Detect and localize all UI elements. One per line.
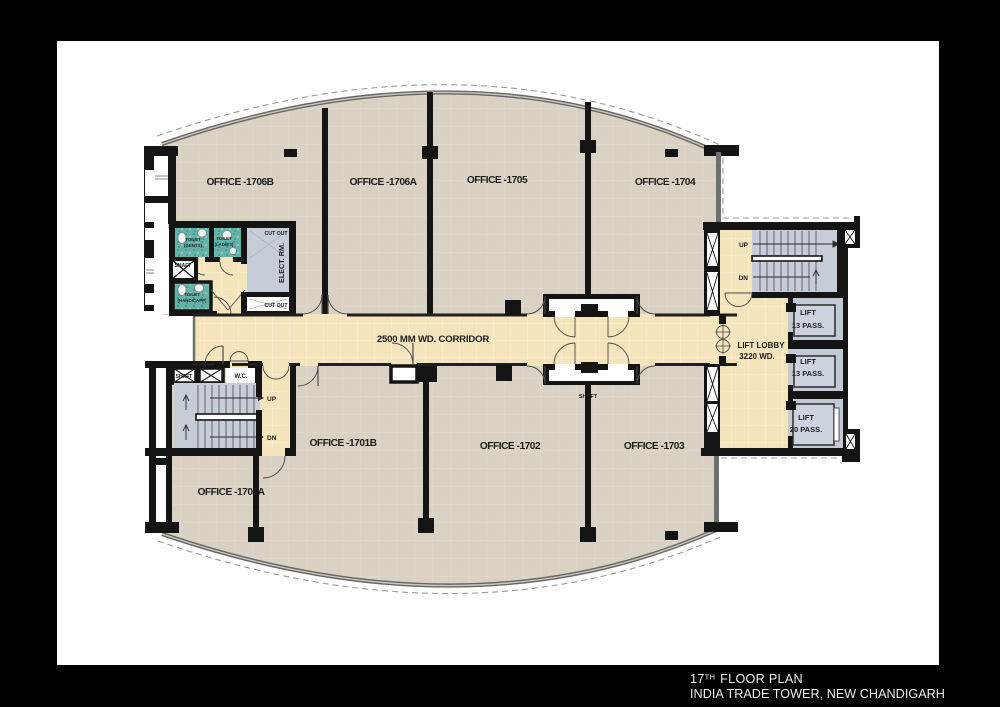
svg-text:2500 MM WD. CORRIDOR: 2500 MM WD. CORRIDOR [377,334,489,345]
svg-text:OFFICE -1704: OFFICE -1704 [635,177,696,188]
svg-text:CUT OUT: CUT OUT [264,231,288,237]
svg-text:OFFICE -1701A: OFFICE -1701A [197,487,265,498]
svg-text:OFFICE -1706B: OFFICE -1706B [206,177,273,188]
svg-text:OFFICE -1702: OFFICE -1702 [480,441,541,452]
svg-text:(HANDICAPP): (HANDICAPP) [177,298,207,303]
svg-text:OFFICE -1705: OFFICE -1705 [467,175,528,186]
svg-text:TOILET: TOILET [184,292,200,297]
svg-text:LIFT LOBBY: LIFT LOBBY [737,341,785,350]
svg-text:(GENTS): (GENTS) [184,243,203,248]
svg-text:LIFT: LIFT [800,308,816,317]
svg-text:OFFICE -1706A: OFFICE -1706A [349,177,417,188]
svg-text:SHAFT: SHAFT [175,263,192,269]
svg-text:SHAFT: SHAFT [579,394,598,400]
svg-text:3220 WD.: 3220 WD. [739,352,775,361]
svg-text:LIFT: LIFT [800,357,816,366]
svg-text:OFFICE -1701B: OFFICE -1701B [309,438,376,449]
svg-text:13 PASS.: 13 PASS. [792,321,824,330]
svg-text:TOILET: TOILET [216,236,232,241]
svg-text:13 PASS.: 13 PASS. [792,369,824,378]
svg-text:LIFT: LIFT [798,413,814,422]
svg-text:UP: UP [267,396,277,403]
svg-text:DN: DN [739,275,749,282]
svg-text:(LADIES): (LADIES) [214,242,234,247]
svg-text:TOILET: TOILET [185,237,201,242]
svg-text:SHAFT: SHAFT [176,374,193,380]
svg-text:CUT OUT: CUT OUT [264,303,288,309]
svg-text:DN: DN [267,435,277,442]
svg-text:OFFICE -1703: OFFICE -1703 [624,441,685,452]
svg-text:UP: UP [739,242,749,249]
svg-text:INDIA TRADE TOWER, NEW CHANDIG: INDIA TRADE TOWER, NEW CHANDIGARH [690,687,945,701]
svg-text:20 PASS.: 20 PASS. [790,425,822,434]
svg-text:ELECT. RM.: ELECT. RM. [277,243,286,283]
svg-text:W.C.: W.C. [235,374,248,380]
